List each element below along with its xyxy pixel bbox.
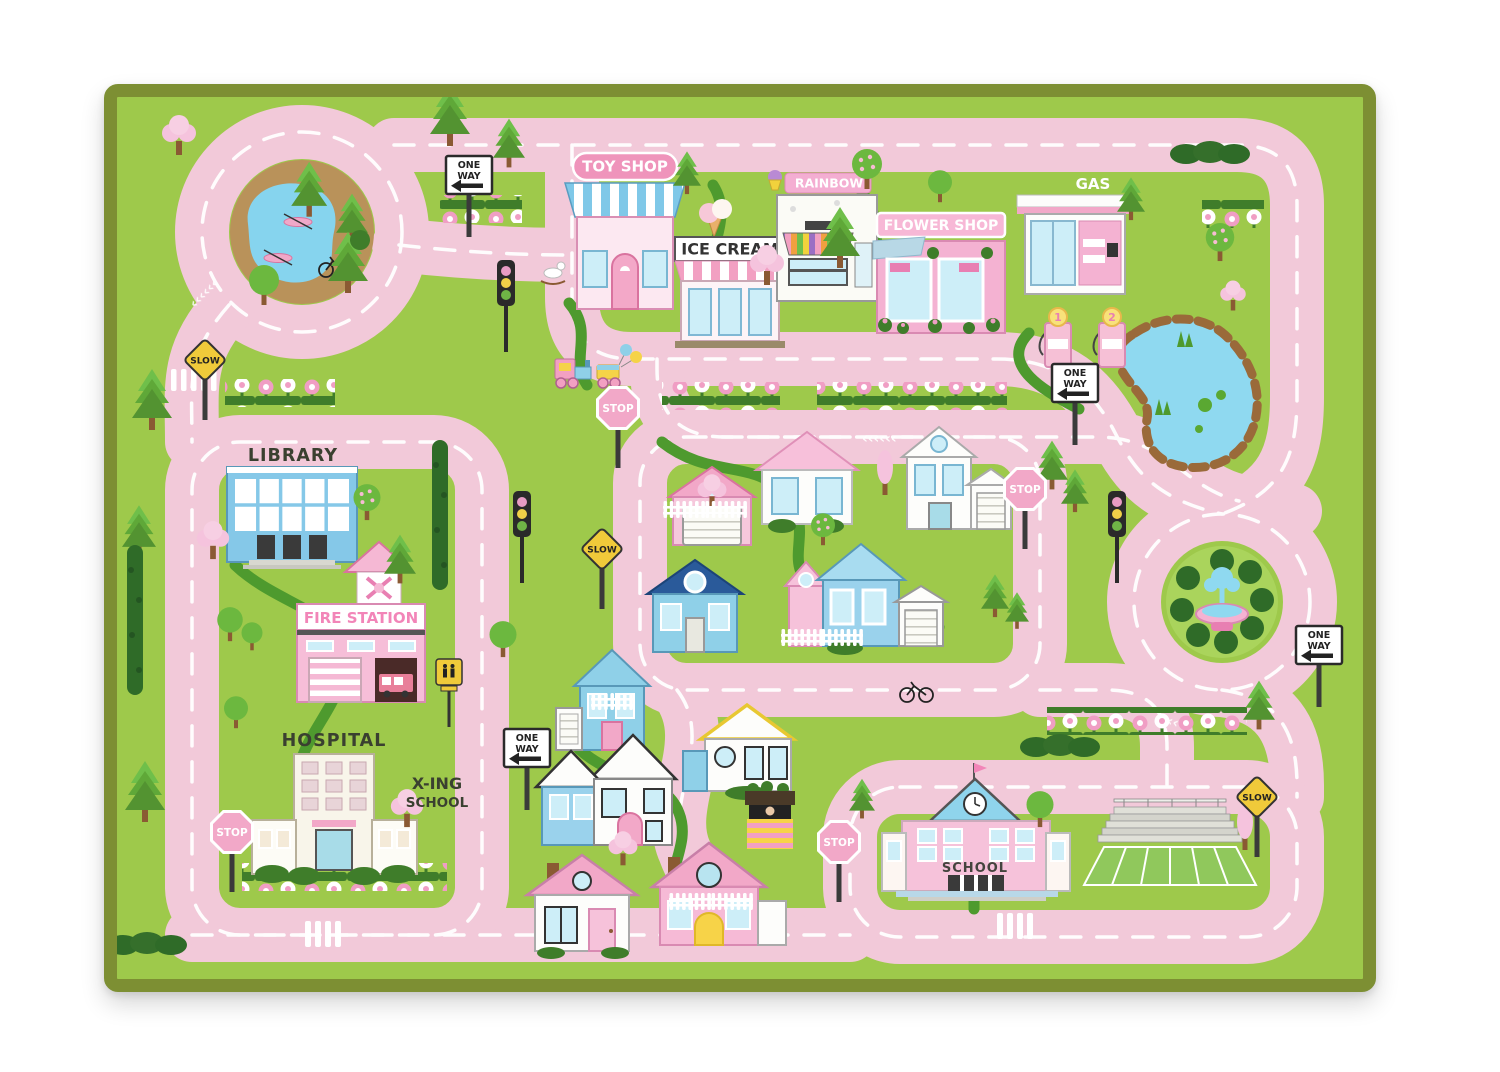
gas-label: GAS: [1076, 175, 1111, 193]
product-photo: ‹‹‹‹‹‹ ‹‹‹‹‹‹ ‹‹‹‹‹‹: [0, 0, 1500, 1072]
cupcake-icon: [768, 170, 782, 190]
pump-1-number: 1: [1054, 311, 1062, 324]
flower-bed: [440, 195, 522, 223]
hospital-label: HOSPITAL: [282, 731, 387, 751]
svg-text:SLOW: SLOW: [190, 357, 220, 367]
cherry-tree: [162, 115, 196, 155]
round-tree: [928, 170, 952, 202]
cherry-tree: [1220, 281, 1246, 311]
pine-tree: [125, 761, 165, 822]
hedge: [127, 545, 143, 695]
svg-text:ONE: ONE: [1308, 630, 1331, 641]
flower-bed: [662, 382, 780, 410]
football-field: [1084, 847, 1256, 885]
rainbow-label: RAINBOW: [795, 176, 864, 191]
toy-shop-label: TOY SHOP: [582, 158, 668, 176]
play-rug: ‹‹‹‹‹‹ ‹‹‹‹‹‹ ‹‹‹‹‹‹: [104, 84, 1376, 992]
bush-row: [1170, 141, 1250, 164]
pine-tree: [981, 574, 1009, 617]
school-xing-label: X-ING SCHOOL: [406, 774, 469, 811]
round-tree: [224, 696, 248, 728]
fruit-tree: [811, 513, 835, 545]
ice-cream-cone-icon: [699, 199, 732, 237]
school-label: SCHOOL: [942, 861, 1008, 876]
svg-text:ONE: ONE: [458, 160, 481, 171]
gas-pump-1: 1: [1040, 308, 1071, 367]
round-tree: [242, 622, 263, 650]
flower-bed: [225, 379, 335, 407]
traffic-light-icon: [513, 491, 531, 583]
toy-shop-awning: [565, 183, 685, 217]
flower-shop-label: FLOWER SHOP: [884, 218, 999, 234]
lemonade-stand: [745, 781, 795, 849]
hedge: [432, 440, 448, 590]
svg-text:SLOW: SLOW: [1242, 794, 1272, 804]
svg-text:X-ING: X-ING: [412, 774, 462, 793]
svg-text:STOP: STOP: [1009, 484, 1041, 496]
gas-pump-2: 2: [1094, 308, 1125, 367]
svg-text:STOP: STOP: [823, 837, 855, 849]
flower-shop-building: FLOWER SHOP: [873, 213, 1005, 334]
round-tree: [217, 607, 243, 641]
cherry-tree-slim: [877, 450, 893, 495]
flower-bed: [1202, 200, 1264, 228]
rainbow-shop: RAINBOW: [768, 170, 877, 301]
traffic-light-icon: [497, 260, 515, 352]
svg-text:ONE: ONE: [1064, 368, 1087, 379]
svg-text:STOP: STOP: [602, 403, 634, 415]
library-label: LIBRARY: [248, 446, 338, 466]
svg-text:STOP: STOP: [216, 827, 248, 839]
fire-station-label: FIRE STATION: [304, 609, 418, 627]
pump-2-number: 2: [1108, 311, 1116, 324]
flower-bed: [1047, 707, 1247, 735]
svg-text:SLOW: SLOW: [587, 546, 617, 556]
house: [536, 735, 676, 845]
bush-row: [1020, 734, 1100, 757]
fruit-tree: [1206, 223, 1235, 261]
flower-bed: [817, 382, 1007, 410]
chevron-row: ‹‹‹‹‹‹: [862, 431, 897, 447]
fountain-roundabout: [1166, 546, 1278, 658]
house: [527, 855, 637, 959]
rug-design: ‹‹‹‹‹‹ ‹‹‹‹‹‹ ‹‹‹‹‹‹: [117, 97, 1363, 979]
svg-text:ONE: ONE: [516, 733, 539, 744]
roundabout-island: [230, 160, 374, 305]
houses-center-block: [647, 427, 1013, 702]
svg-text:SCHOOL: SCHOOL: [406, 795, 469, 811]
